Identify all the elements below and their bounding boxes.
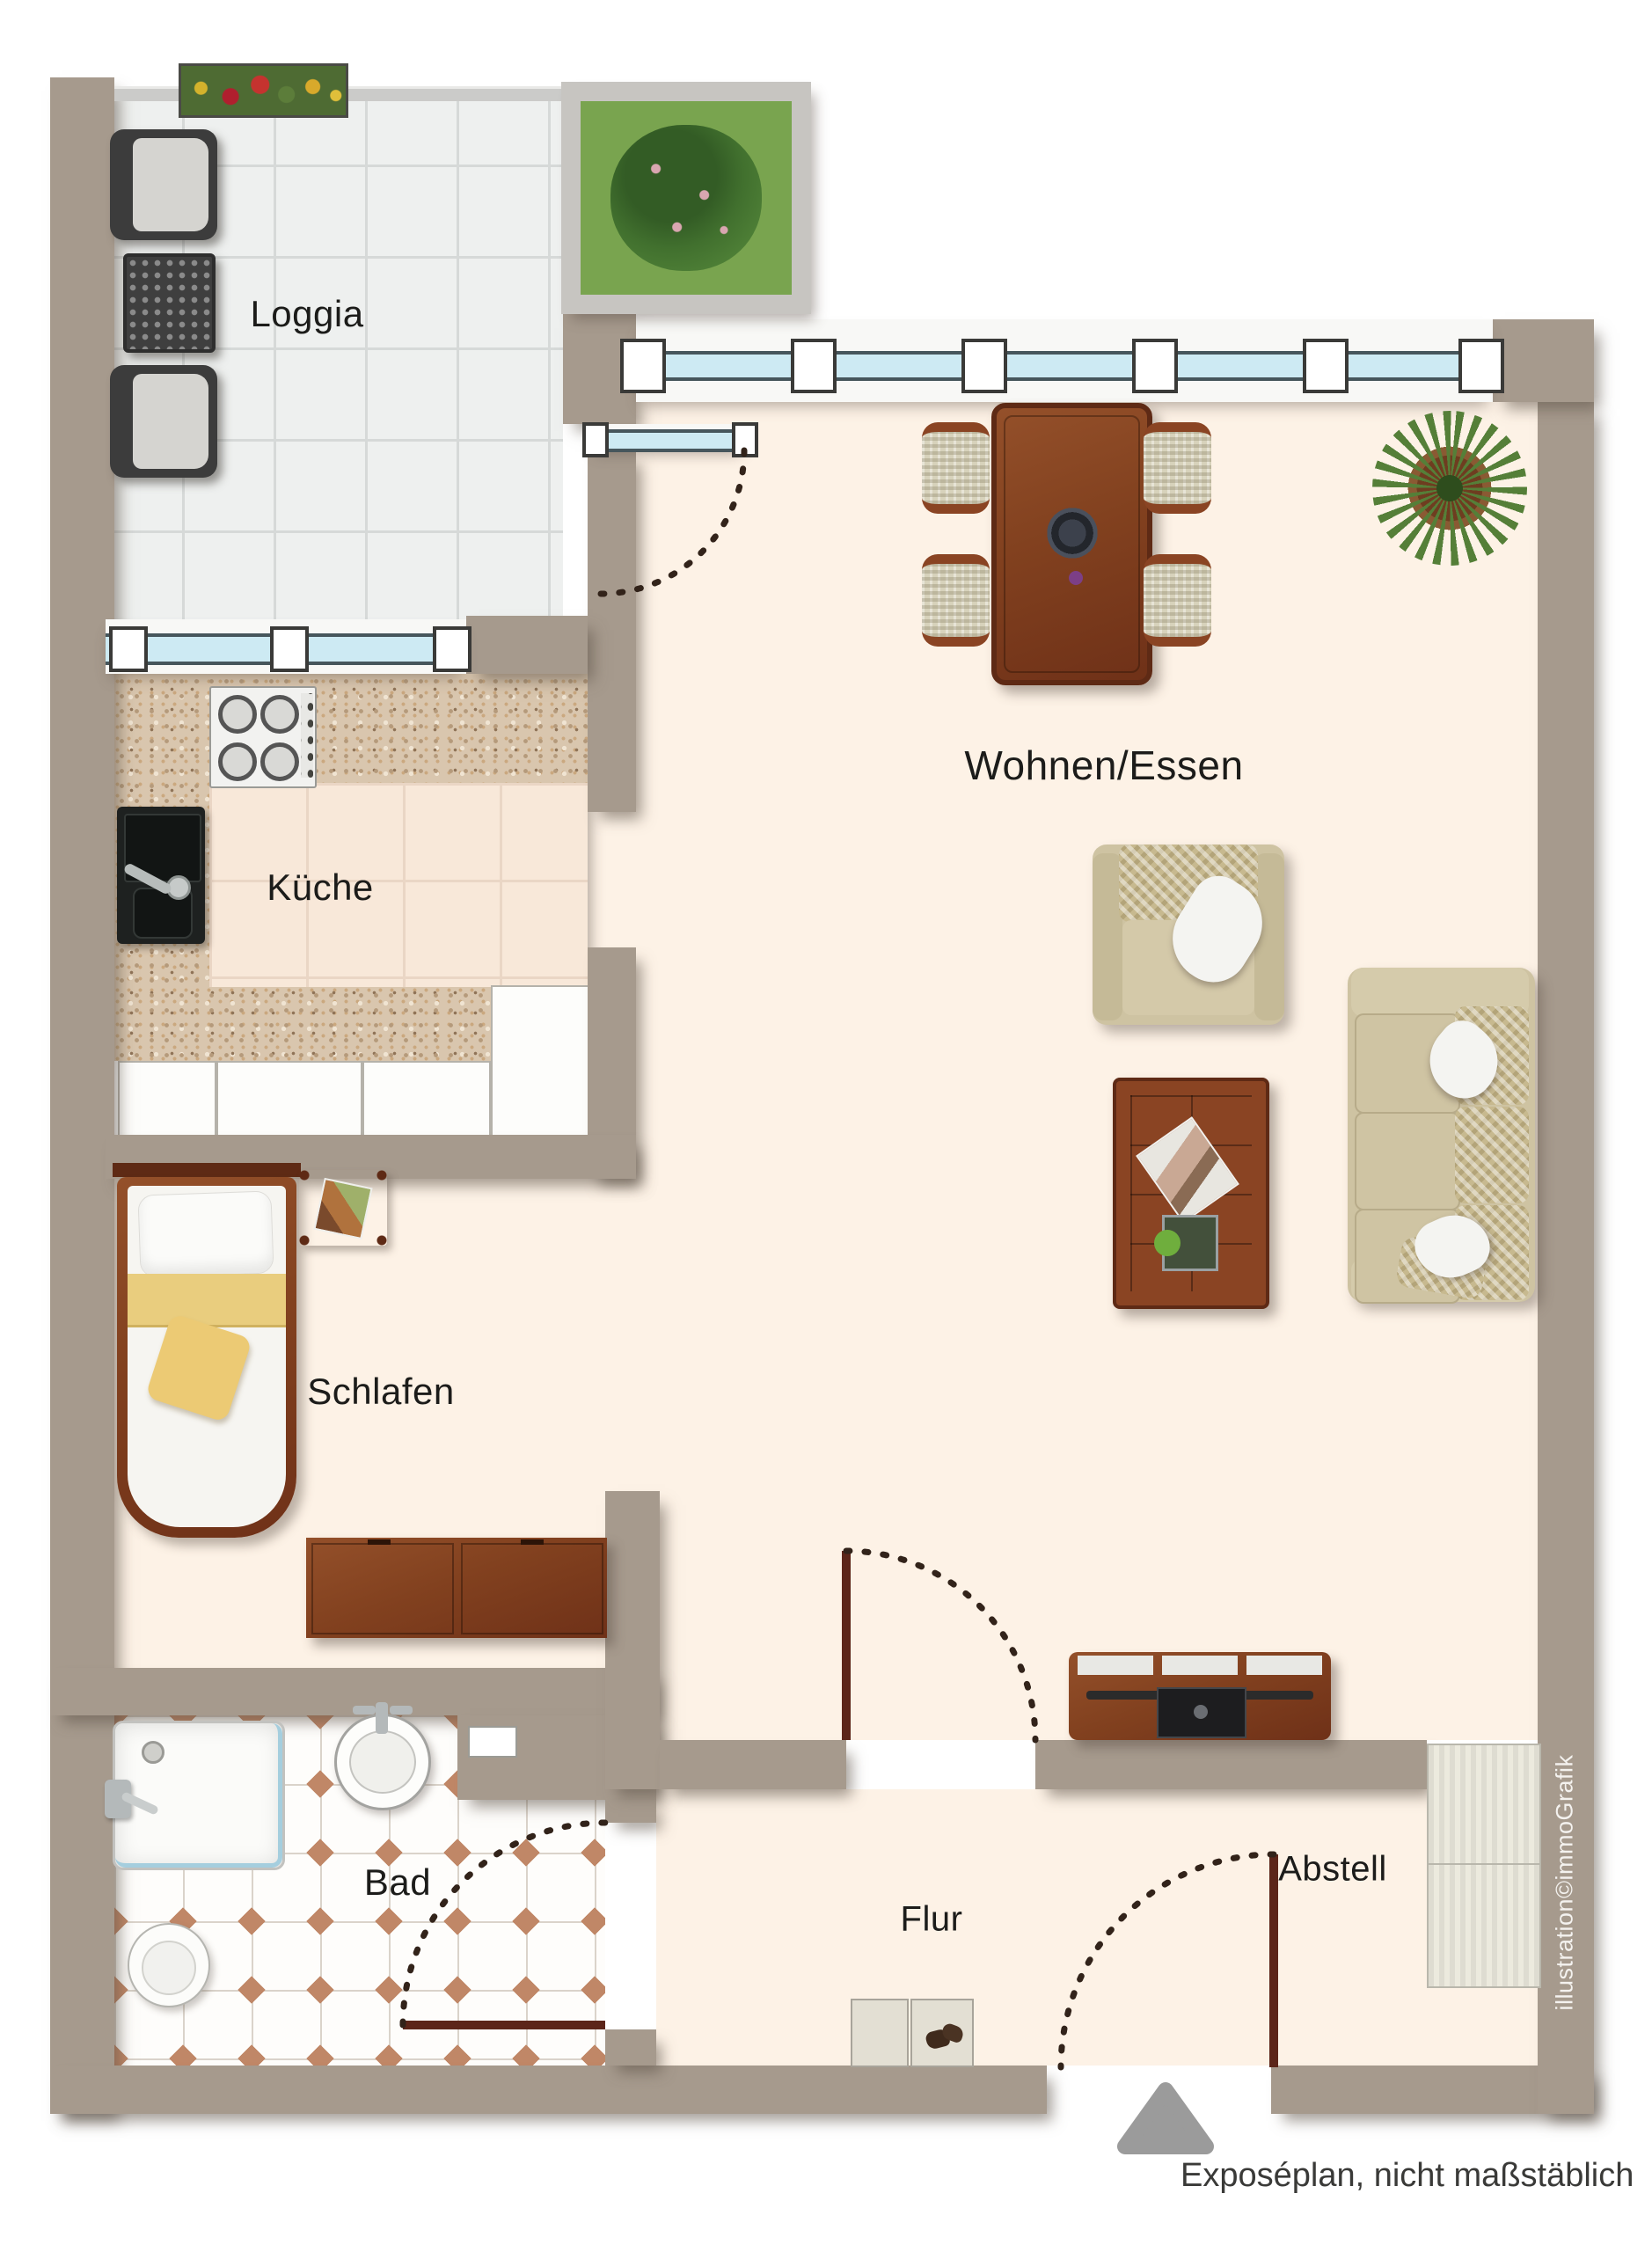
outdoor-chair — [110, 129, 217, 240]
armrest — [1093, 853, 1122, 1020]
seat-cushion — [1355, 1112, 1460, 1210]
bed-headboard — [113, 1163, 301, 1177]
back-cushion — [1455, 1107, 1529, 1203]
door-leaf-entry — [1269, 1854, 1278, 2067]
outer-wall-corner-top-right — [1493, 319, 1594, 402]
tv-sideboard — [1069, 1652, 1331, 1740]
bush — [610, 125, 762, 271]
shower-glass — [115, 1723, 282, 1868]
washbasin-bowl — [349, 1730, 416, 1794]
bed-pillow — [137, 1190, 274, 1277]
kitchen-sink — [117, 807, 205, 944]
wall-bedroom-hall-stub — [605, 1491, 660, 1789]
window-mullion — [270, 626, 309, 672]
coffee-table — [1113, 1078, 1269, 1309]
hob — [209, 686, 317, 788]
window-mullion — [433, 626, 471, 672]
single-bed — [117, 1177, 296, 1538]
toilet — [128, 1923, 210, 2007]
toilet-bowl — [142, 1941, 196, 1995]
burner — [218, 695, 257, 734]
rack-box — [851, 1999, 909, 2067]
kitchen-base-cabinet — [216, 1061, 362, 1138]
room-label-kueche: Küche — [267, 866, 374, 909]
window-mullion — [1458, 339, 1504, 393]
dining-chair — [1144, 422, 1211, 514]
burner — [260, 695, 299, 734]
sofa — [1348, 968, 1535, 1302]
wall-bath-right-lower — [605, 2029, 656, 2066]
tv-stand-icon — [1194, 1705, 1208, 1719]
duvet-band — [128, 1274, 286, 1327]
room-label-bad: Bad — [364, 1861, 431, 1904]
dining-table — [991, 403, 1152, 685]
built-in-closet — [1427, 1744, 1541, 1988]
chair-cushion — [133, 374, 208, 469]
burner — [218, 742, 257, 781]
kitchen-base-cabinet — [118, 1061, 216, 1138]
room-label-schlafen: Schlafen — [307, 1371, 454, 1413]
outdoor-table — [123, 253, 216, 353]
hob-controls — [301, 693, 313, 778]
window-mullion — [620, 339, 666, 393]
window-mullion — [109, 626, 148, 672]
dining-chair — [922, 422, 990, 514]
flower-box — [179, 63, 348, 118]
plan-caption: Exposéplan, nicht maßstäblich — [1181, 2157, 1634, 2195]
window-mullion — [961, 339, 1007, 393]
balcony-door-frame — [582, 422, 609, 457]
dining-chair — [922, 554, 990, 647]
wall-bath-right-upper — [605, 1800, 656, 1823]
entrance-arrow-icon — [1125, 2090, 1206, 2146]
dresser — [306, 1538, 607, 1638]
dresser-handle-icon — [368, 1539, 391, 1545]
kitchen-base-cabinet — [362, 1061, 491, 1138]
shower — [113, 1721, 285, 1870]
sideboard-shelf — [1078, 1656, 1153, 1675]
wall-kitchen-living-upper — [588, 450, 636, 812]
room-label-abstell: Abstell — [1278, 1850, 1387, 1890]
room-label-loggia: Loggia — [250, 293, 363, 335]
wall-niche — [468, 1726, 517, 1758]
book — [313, 1178, 372, 1239]
door-leaf-bath — [403, 2021, 605, 2029]
closet-divider — [1429, 1863, 1539, 1865]
basin-handle-icon — [353, 1706, 376, 1715]
dresser-panel — [311, 1543, 454, 1634]
sideboard-shelf — [1246, 1656, 1322, 1675]
illustrator-credit: illustration©immoGrafik — [1552, 1755, 1579, 2011]
outer-wall-bottom-left — [50, 2066, 1047, 2114]
basin-faucet-icon — [376, 1702, 388, 1734]
balcony-door-frame — [732, 422, 758, 457]
armchair — [1093, 844, 1284, 1025]
wall-kitchen-window-pier — [466, 616, 588, 674]
dining-chair — [1144, 554, 1211, 647]
shower-drain-icon — [142, 1741, 164, 1764]
room-label-wohnen: Wohnen/Essen — [964, 742, 1243, 789]
tv-panel — [1157, 1687, 1246, 1738]
kitchen-tall-cabinet — [491, 985, 591, 1138]
chair-cushion — [133, 138, 208, 231]
door-leaf-living-hall — [842, 1551, 851, 1740]
potted-plant — [1372, 411, 1527, 566]
nightstand — [299, 1170, 387, 1246]
burner — [260, 742, 299, 781]
window-mullion — [1132, 339, 1178, 393]
wall-living-hall-right — [1035, 1740, 1427, 1789]
centerpiece-bowl — [1047, 508, 1098, 559]
washbasin — [334, 1714, 431, 1810]
hallway-floor — [656, 1789, 1538, 2066]
window-mullion — [791, 339, 837, 393]
planter-bed — [561, 82, 811, 314]
window-glazing-south — [636, 351, 1493, 381]
dresser-handle-icon — [521, 1539, 544, 1545]
wall-living-hall-left — [660, 1740, 846, 1789]
basin-handle-icon — [390, 1706, 413, 1715]
window-mullion — [1303, 339, 1349, 393]
outdoor-chair — [110, 365, 217, 478]
sprig — [1154, 1230, 1181, 1256]
sideboard-shelf — [1162, 1656, 1238, 1675]
shoe-rack — [851, 1999, 972, 2066]
dresser-panel — [461, 1543, 603, 1634]
room-label-flur: Flur — [901, 1900, 963, 1940]
balcony-door-glazing — [589, 429, 746, 452]
floor-plan: Loggia Küche Wohnen/Essen Schlafen Bad F… — [0, 0, 1652, 2252]
mini-planter — [1162, 1215, 1218, 1271]
